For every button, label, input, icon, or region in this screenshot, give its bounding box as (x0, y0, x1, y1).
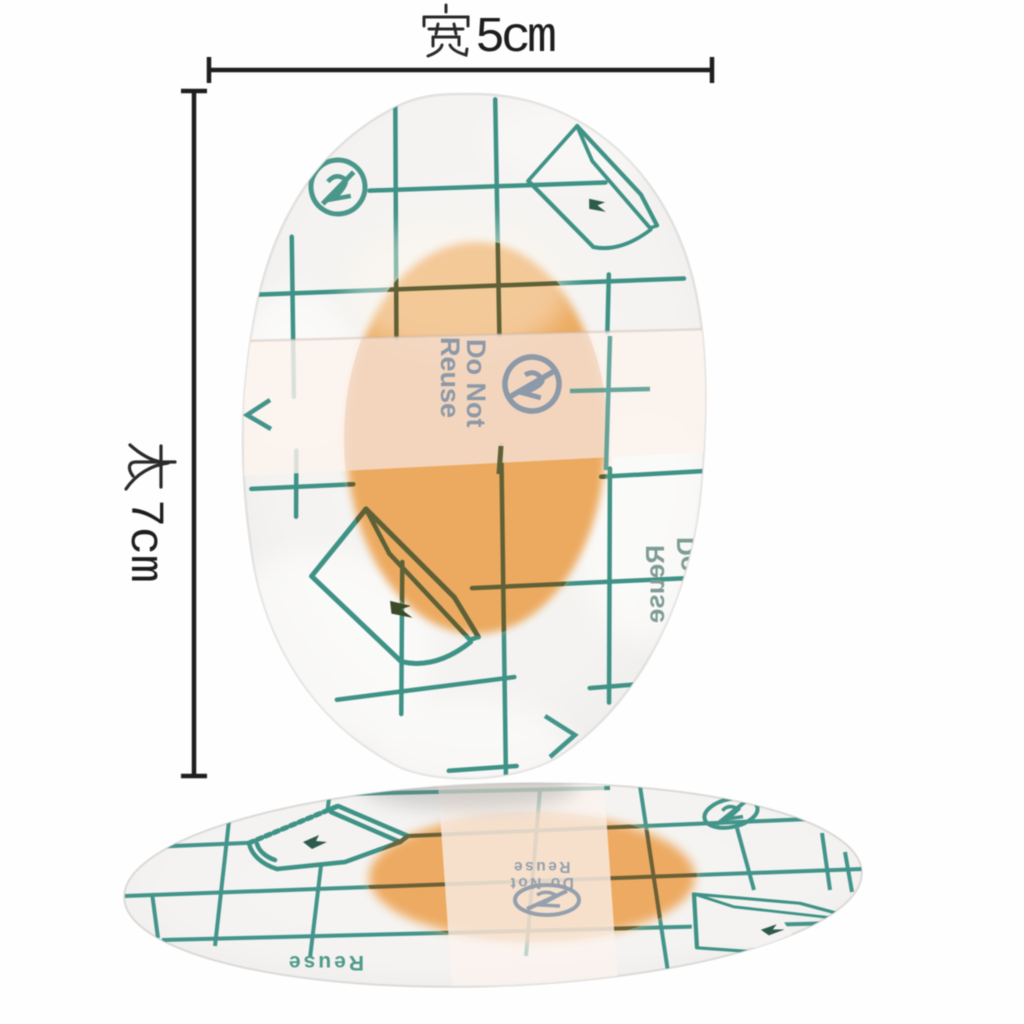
svg-text:Do: Do (671, 537, 701, 572)
svg-text:Reuse: Reuse (286, 951, 364, 974)
svg-text:Reuse: Reuse (511, 858, 570, 875)
svg-text:5cm: 5cm (475, 10, 557, 67)
svg-text:7cm: 7cm (117, 499, 170, 583)
svg-text:Reuse: Reuse (640, 545, 670, 623)
svg-text:Reuse: Reuse (435, 337, 465, 418)
